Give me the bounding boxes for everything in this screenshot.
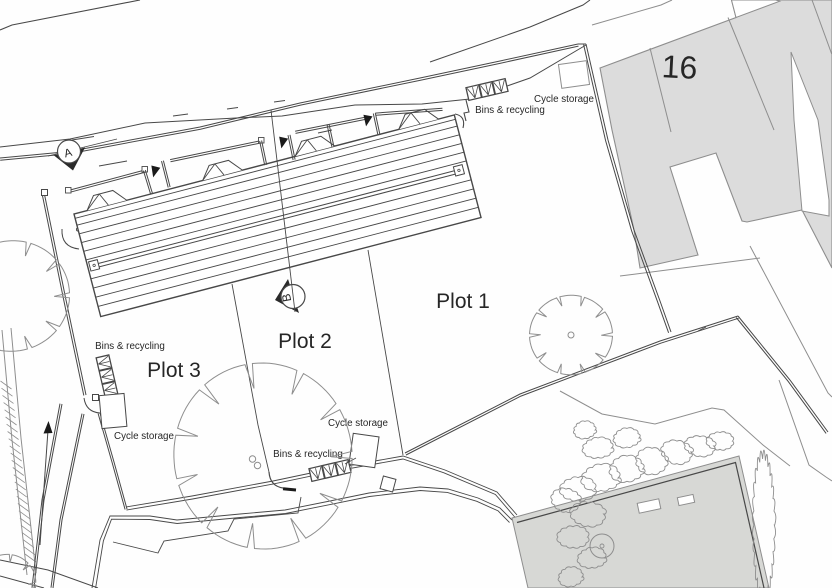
svg-text:Cycle storage: Cycle storage: [328, 418, 388, 429]
svg-text:Bins & recycling: Bins & recycling: [273, 449, 343, 460]
svg-text:Plot 2: Plot 2: [278, 330, 332, 353]
svg-text:Bins & recycling: Bins & recycling: [475, 105, 545, 116]
svg-text:Cycle storage: Cycle storage: [114, 431, 174, 442]
svg-text:Plot 1: Plot 1: [436, 290, 490, 313]
svg-text:Bins & recycling: Bins & recycling: [95, 341, 165, 352]
svg-text:Plot 3: Plot 3: [147, 359, 201, 382]
svg-text:Cycle storage: Cycle storage: [534, 94, 594, 105]
svg-text:16: 16: [661, 48, 698, 86]
